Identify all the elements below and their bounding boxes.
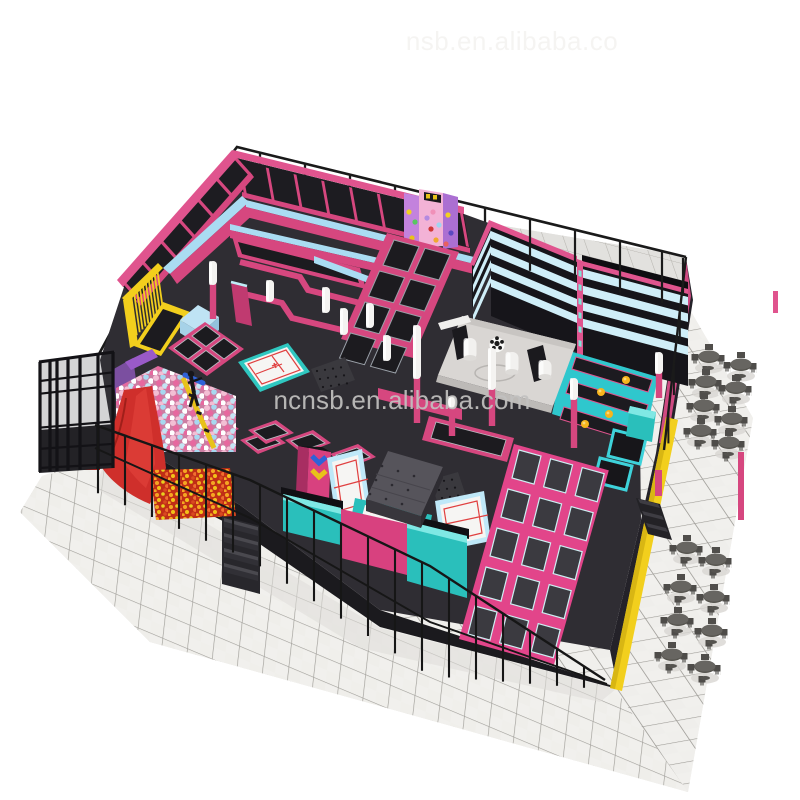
svg-text:nsb.en.alibaba.co: nsb.en.alibaba.co [406, 26, 618, 56]
svg-text:ncnsb.en.alibaba.com: ncnsb.en.alibaba.com [274, 385, 531, 415]
